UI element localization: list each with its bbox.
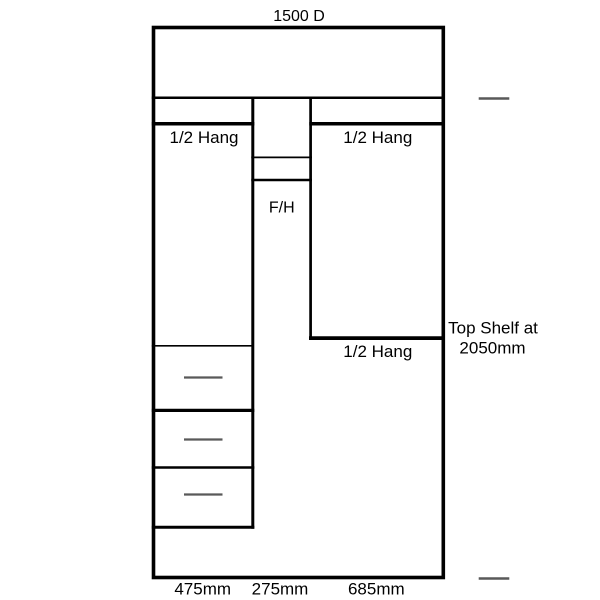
svg-text:275mm: 275mm — [252, 580, 309, 599]
svg-text:1500 D: 1500 D — [273, 8, 325, 25]
svg-text:1/2 Hang: 1/2 Hang — [343, 342, 412, 361]
svg-text:1/2 Hang: 1/2 Hang — [343, 128, 412, 147]
svg-text:F/H: F/H — [269, 200, 295, 217]
svg-text:Top Shelf at: Top Shelf at — [448, 319, 538, 338]
svg-text:1/2 Hang: 1/2 Hang — [170, 128, 239, 147]
svg-text:2050mm: 2050mm — [459, 339, 525, 358]
svg-text:475mm: 475mm — [174, 580, 231, 599]
svg-text:685mm: 685mm — [348, 580, 405, 599]
